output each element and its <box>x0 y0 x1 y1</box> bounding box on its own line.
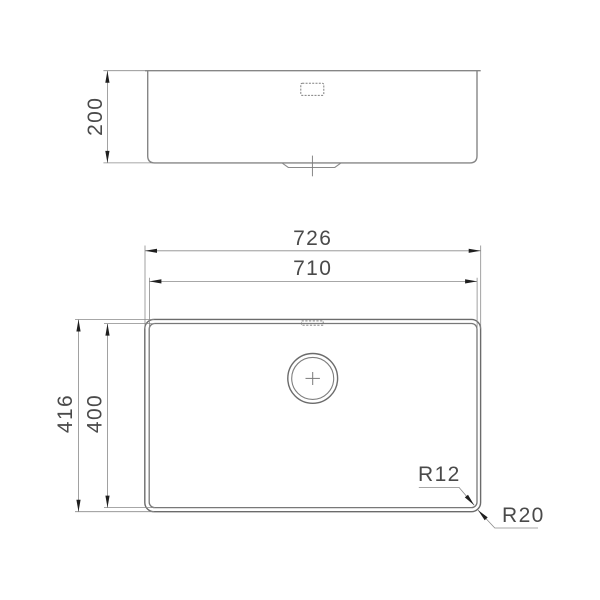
svg-text:400: 400 <box>84 394 107 433</box>
svg-text:710: 710 <box>293 257 332 280</box>
svg-text:R12: R12 <box>418 463 461 486</box>
svg-text:726: 726 <box>293 227 332 250</box>
svg-text:R20: R20 <box>502 504 545 527</box>
svg-text:416: 416 <box>54 394 77 433</box>
svg-text:200: 200 <box>84 97 107 136</box>
